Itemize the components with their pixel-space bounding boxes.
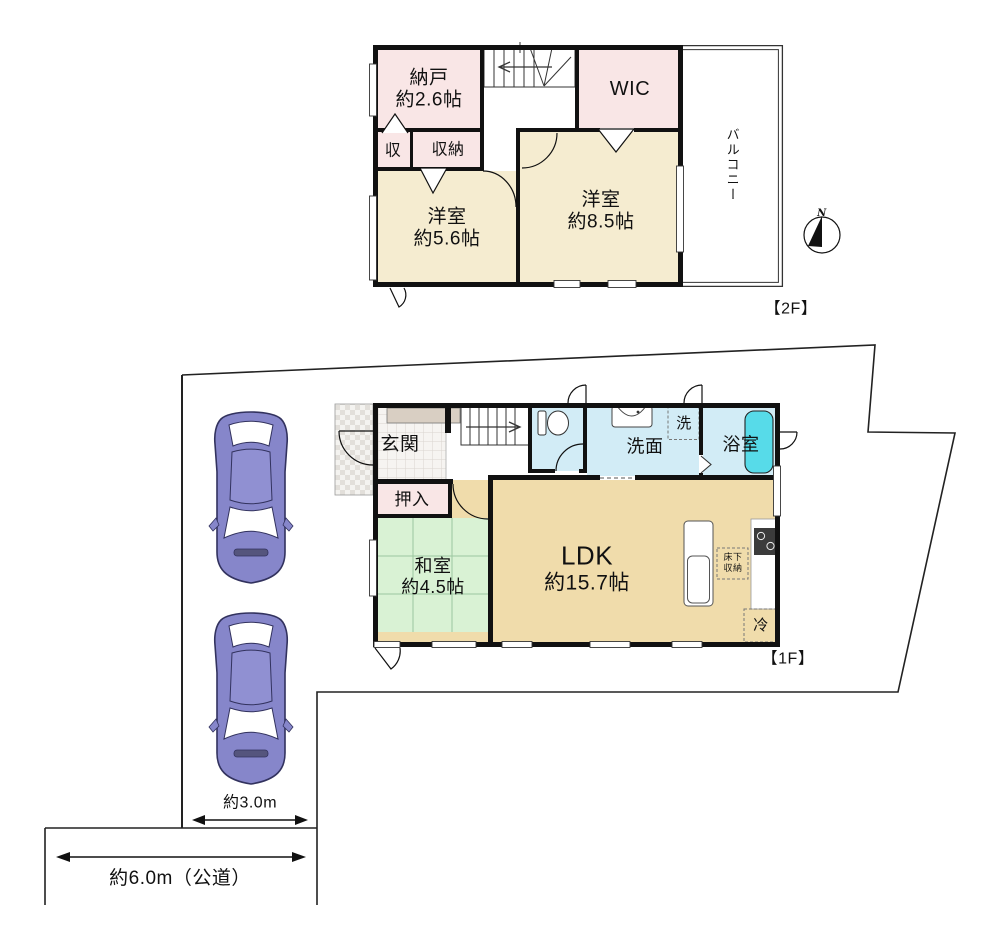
island-sink [688,556,710,603]
floor-label-2f: 【2F】 [765,301,818,320]
exterior-door-arc-2 [684,385,702,403]
room-label-closet-small: 収 [385,143,402,162]
room-label-wic: WIC [610,78,650,102]
door-swing-2f-bottom [390,288,406,307]
road-width-label: 約6.0m（公道） [109,868,251,890]
stove-icon [754,528,778,555]
fridge-label: 冷 [753,617,769,635]
floor-plan-drawing [0,0,1000,950]
room-label-western-large: 洋室 約8.5帖 [568,190,635,235]
bath-exterior-door-arc [780,432,797,449]
balcony-label: バルコニー [724,128,739,203]
room-label-closet: 収納 [431,142,464,161]
floor-label-1f: 【1F】 [762,651,815,670]
room-label-storage: 納戸 約2.6帖 [396,68,463,113]
compass-north-label: N [817,208,827,220]
car-bottom [209,613,293,784]
room-label-washroom: 洗面 [627,436,664,457]
entrance-porch [335,404,373,495]
room-label-bathroom: 浴室 [723,434,760,455]
toilet-icon [538,411,569,435]
room-label-western-small: 洋室 約5.6帖 [414,207,481,252]
first-floor-plan [335,385,797,669]
room-label-japanese-room: 和室 約4.5帖 [401,556,465,598]
car-top [209,412,293,583]
underfloor-storage-label: 床下 収納 [723,552,742,574]
room-label-ldk: LDK 約15.7帖 [544,540,630,595]
room-label-entrance: 玄関 [380,434,419,456]
stairs-1f [461,406,529,445]
room-label-oshiire: 押入 [395,490,430,510]
room-label-laundry: 洗 [676,415,692,433]
compass-icon [804,216,840,253]
road-width-arrow [56,852,306,862]
door-swing-1f-bottom [375,648,400,669]
floorplan-page: { "colors": { "wall": "#111111", "room_p… [0,0,1000,950]
parking-width-arrow [192,815,308,825]
exterior-door-arc-1 [568,385,586,403]
washbasin-icon [612,406,652,427]
parking-width-label: 約3.0m [223,795,277,814]
